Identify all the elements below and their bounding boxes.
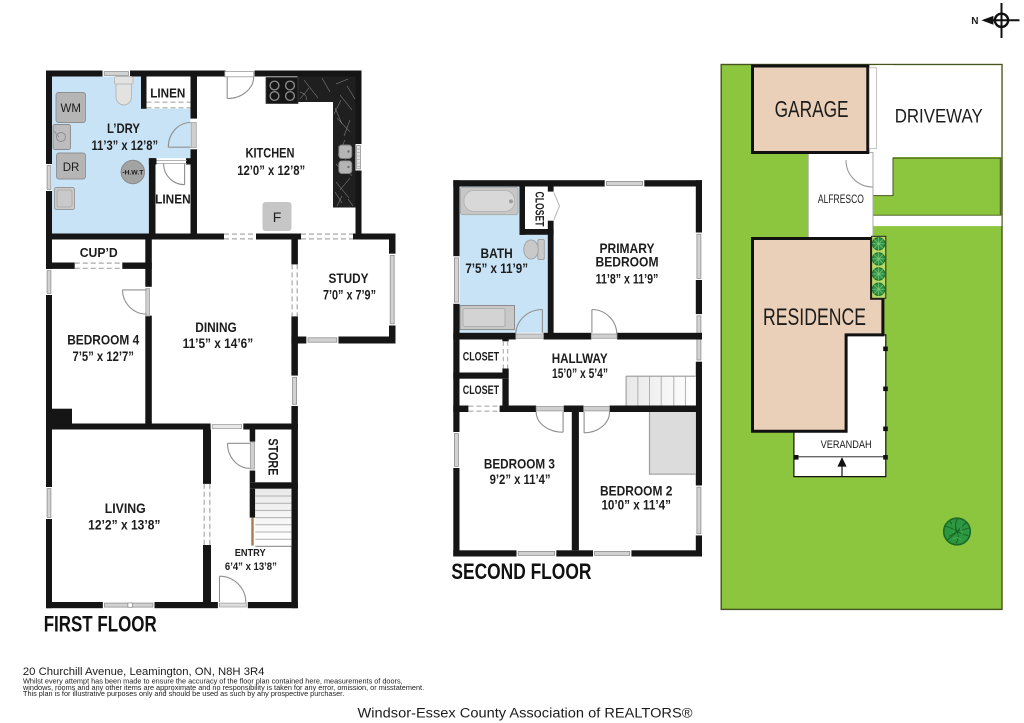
svg-text:F: F	[273, 209, 282, 225]
svg-text:12’0” x 12’8”: 12’0” x 12’8”	[237, 163, 305, 178]
svg-text:7’5” x 12’7”: 7’5” x 12’7”	[72, 349, 134, 364]
svg-text:KITCHEN: KITCHEN	[246, 145, 295, 161]
svg-text:LINEN: LINEN	[155, 192, 191, 206]
svg-text:N: N	[971, 16, 978, 27]
svg-text:VERANDAH: VERANDAH	[821, 439, 872, 451]
svg-text:GARAGE: GARAGE	[775, 96, 849, 122]
svg-text:HALLWAY: HALLWAY	[552, 350, 609, 366]
svg-text:L’DRY: L’DRY	[107, 120, 141, 136]
svg-text:15’0” x 5’4”: 15’0” x 5’4”	[552, 366, 608, 381]
svg-text:STORE: STORE	[265, 438, 281, 475]
svg-text:DR: DR	[63, 162, 80, 174]
svg-text:11’8” x 11’9”: 11’8” x 11’9”	[596, 271, 659, 286]
svg-text:11’3” x 12’8”: 11’3” x 12’8”	[92, 138, 159, 153]
svg-text:ENTRY: ENTRY	[235, 547, 266, 559]
svg-text:FIRST FLOOR: FIRST FLOOR	[44, 612, 157, 637]
svg-text:9’2” x 11’4”: 9’2” x 11’4”	[490, 472, 551, 487]
svg-text:Windsor-Essex County Associati: Windsor-Essex County Association of REAL…	[358, 706, 693, 721]
svg-text:10’0” x 11’4”: 10’0” x 11’4”	[601, 498, 671, 513]
svg-text:CLOSET: CLOSET	[463, 383, 500, 397]
svg-text:6’4” x 13’8”: 6’4” x 13’8”	[225, 561, 277, 573]
svg-text:BEDROOM 4: BEDROOM 4	[67, 332, 139, 348]
svg-text:BEDROOM 2: BEDROOM 2	[600, 483, 672, 499]
svg-text:12’2” x 13’8”: 12’2” x 13’8”	[88, 518, 160, 533]
svg-text:CLOSET: CLOSET	[532, 192, 544, 227]
svg-text:CLOSET: CLOSET	[463, 350, 500, 364]
svg-text:LINEN: LINEN	[150, 87, 185, 101]
svg-text:7’5” x 11’9”: 7’5” x 11’9”	[465, 261, 528, 276]
svg-text:DINING: DINING	[195, 319, 237, 335]
svg-text:BEDROOM: BEDROOM	[596, 254, 659, 270]
svg-text:SECOND FLOOR: SECOND FLOOR	[451, 559, 591, 584]
svg-text:11’5” x 14’6”: 11’5” x 14’6”	[183, 336, 254, 351]
svg-text:7’0” x 7’9”: 7’0” x 7’9”	[323, 287, 376, 302]
svg-text:DRIVEWAY: DRIVEWAY	[895, 105, 983, 127]
svg-text:CUP’D: CUP’D	[80, 246, 118, 260]
svg-text:-H.W.T: -H.W.T	[122, 170, 144, 177]
svg-text:STUDY: STUDY	[329, 270, 370, 286]
svg-text:BEDROOM 3: BEDROOM 3	[484, 456, 555, 472]
svg-text:WM: WM	[60, 103, 80, 115]
svg-text:This plan is for illustrative: This plan is for illustrative purposes o…	[23, 689, 344, 698]
svg-text:RESIDENCE: RESIDENCE	[763, 304, 866, 331]
svg-text:LIVING: LIVING	[105, 500, 146, 516]
svg-text:BATH: BATH	[481, 245, 513, 261]
svg-text:ALFRESCO: ALFRESCO	[818, 194, 864, 206]
